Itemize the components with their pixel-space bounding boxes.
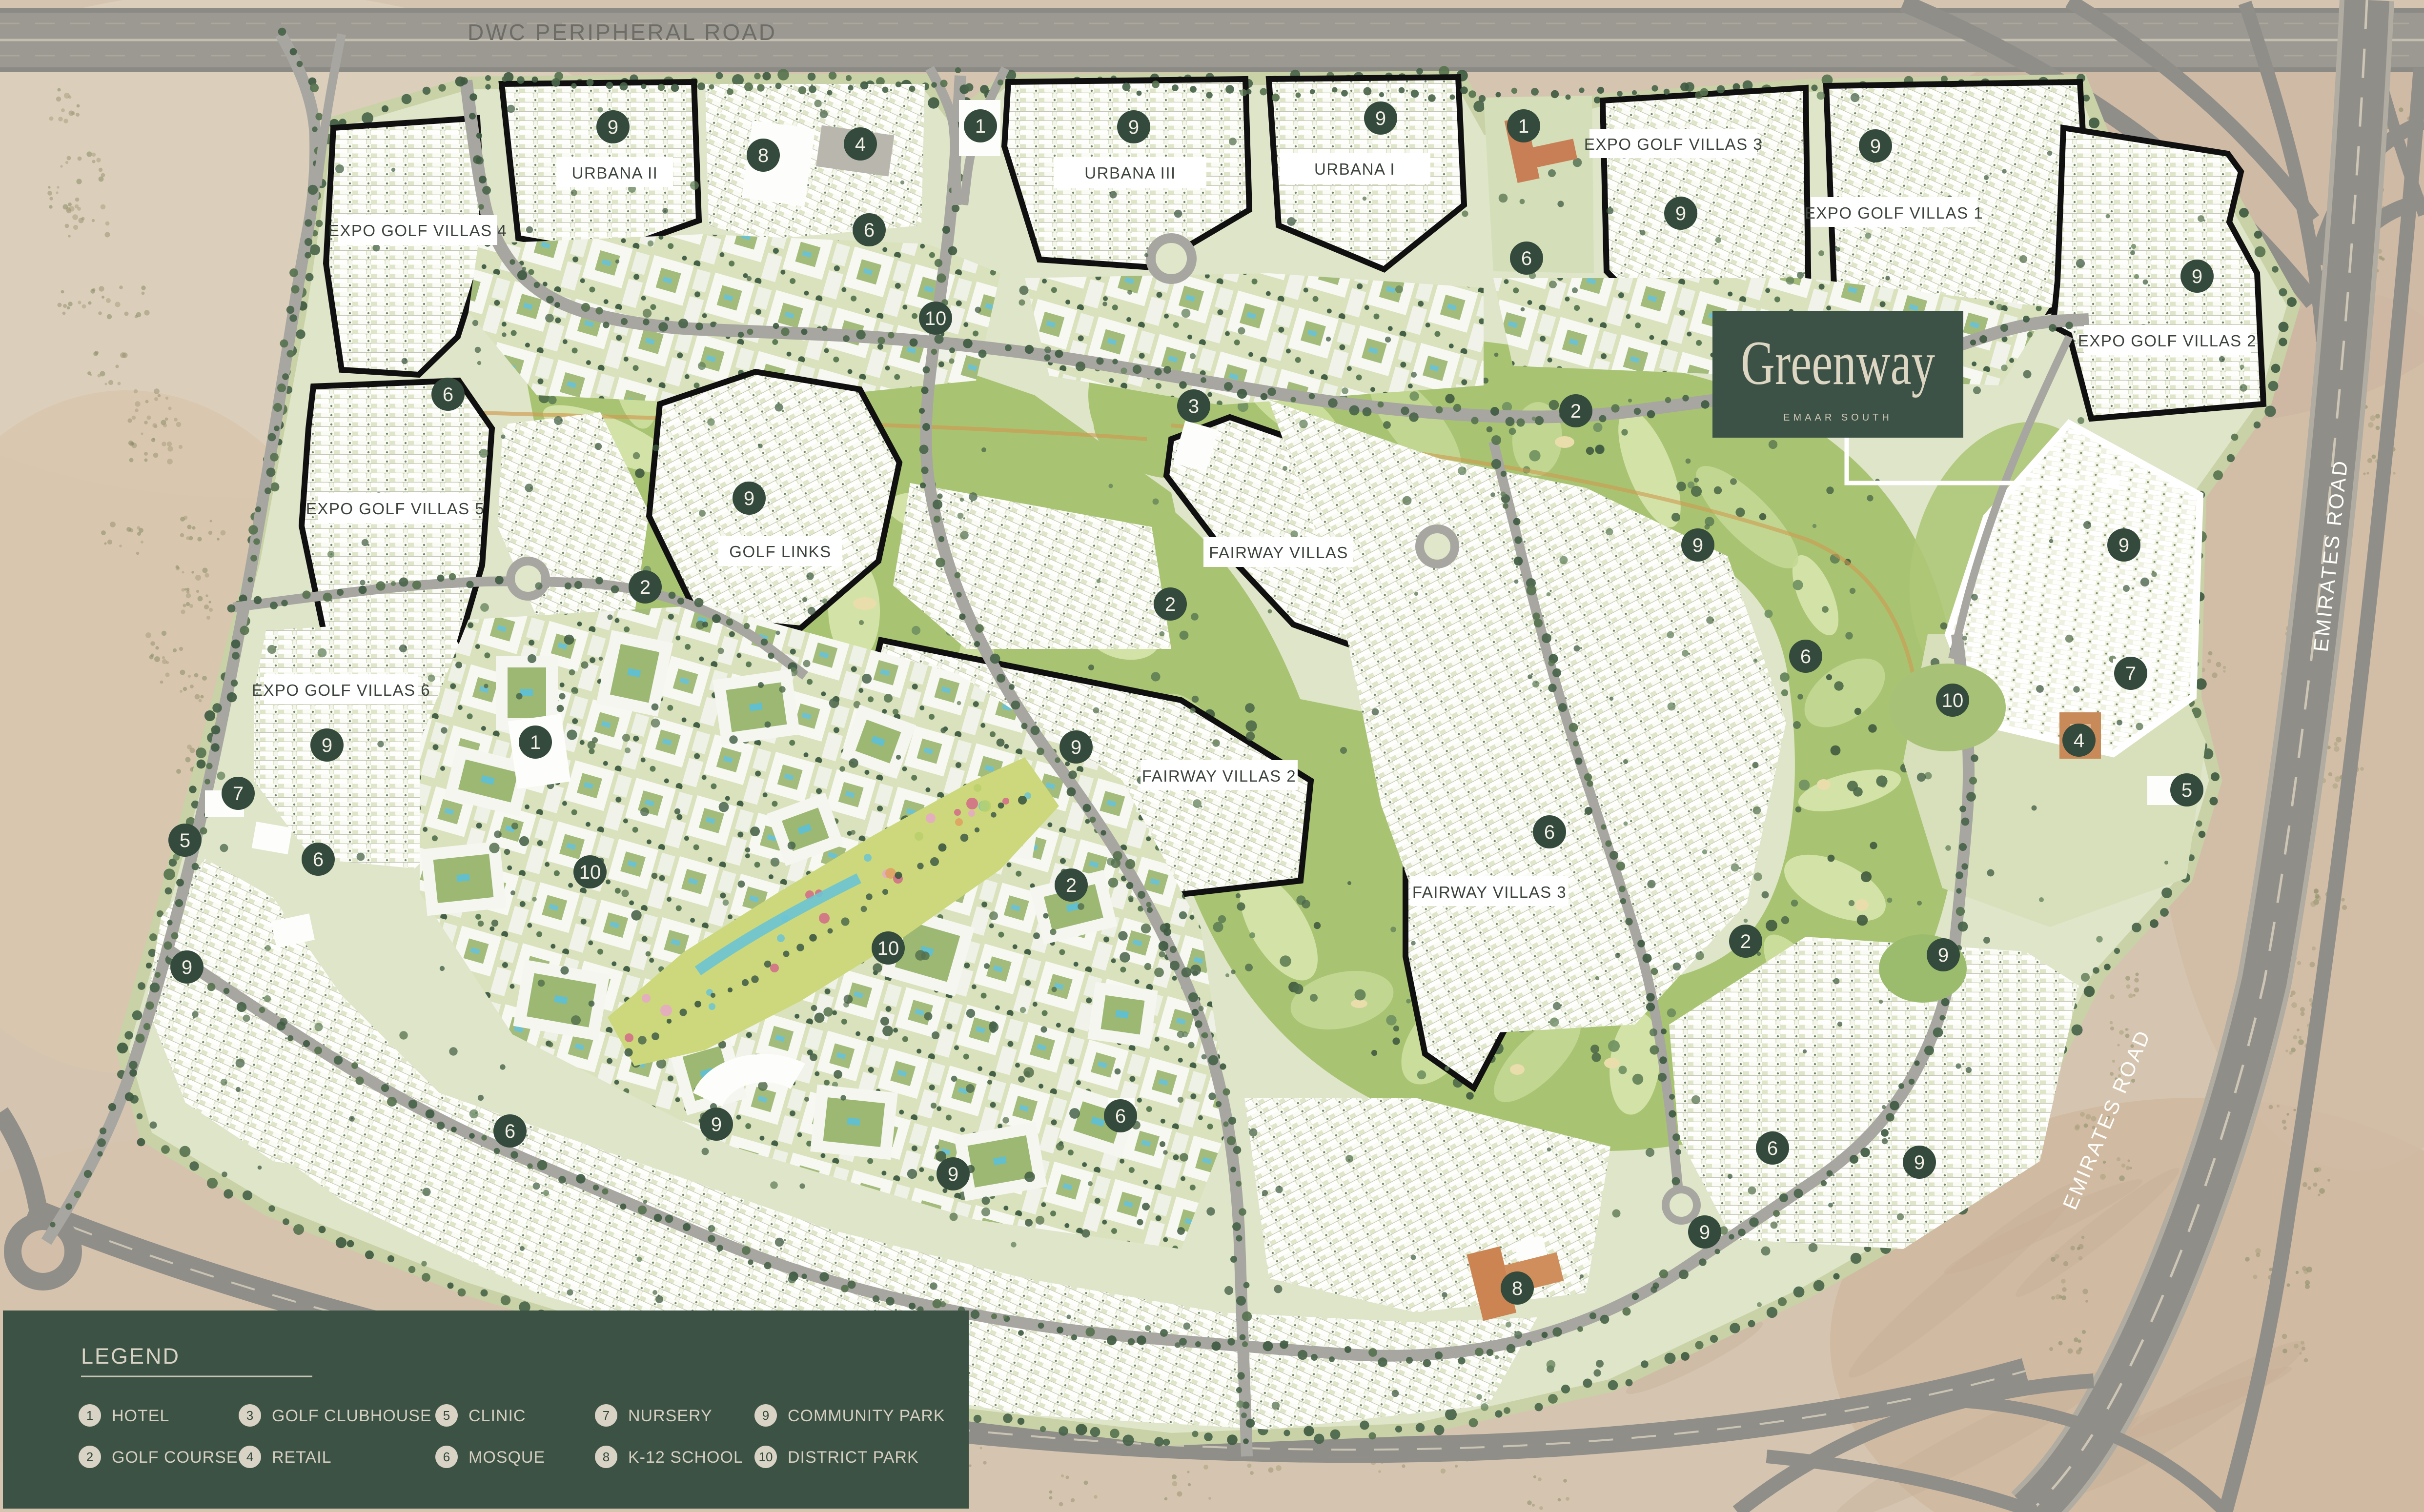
svg-text:2: 2 (1740, 931, 1751, 952)
svg-text:NURSERY: NURSERY (628, 1407, 713, 1425)
svg-text:6: 6 (313, 849, 324, 870)
svg-text:10: 10 (877, 938, 899, 959)
svg-text:6: 6 (443, 1450, 450, 1464)
svg-text:8: 8 (1512, 1278, 1523, 1299)
svg-text:URBANA III: URBANA III (1084, 164, 1176, 182)
svg-text:FAIRWAY VILLAS: FAIRWAY VILLAS (1209, 544, 1348, 562)
svg-text:EXPO GOLF VILLAS 1: EXPO GOLF VILLAS 1 (1805, 204, 1983, 222)
svg-text:EXPO GOLF VILLAS 5: EXPO GOLF VILLAS 5 (306, 500, 485, 518)
svg-text:8: 8 (603, 1450, 610, 1464)
svg-text:10: 10 (579, 862, 601, 883)
svg-text:9: 9 (1870, 136, 1881, 157)
svg-text:4: 4 (246, 1450, 253, 1464)
svg-text:10: 10 (1942, 690, 1964, 711)
svg-text:9: 9 (1914, 1152, 1925, 1173)
svg-text:GOLF LINKS: GOLF LINKS (729, 543, 831, 561)
svg-text:9: 9 (711, 1114, 722, 1135)
svg-text:Greenway: Greenway (1741, 328, 1935, 398)
svg-text:2: 2 (640, 577, 651, 598)
svg-text:5: 5 (180, 830, 190, 851)
svg-text:2: 2 (1570, 401, 1581, 422)
svg-text:6: 6 (1800, 646, 1811, 667)
svg-text:1: 1 (1518, 116, 1529, 137)
svg-text:1: 1 (86, 1408, 93, 1423)
svg-text:6: 6 (864, 220, 875, 241)
svg-text:2: 2 (86, 1450, 93, 1464)
svg-text:COMMUNITY PARK: COMMUNITY PARK (788, 1407, 945, 1425)
svg-text:6: 6 (1115, 1106, 1126, 1127)
svg-text:9: 9 (744, 488, 754, 509)
svg-text:7: 7 (233, 783, 244, 805)
svg-text:RETAIL: RETAIL (272, 1448, 332, 1467)
svg-text:3: 3 (1188, 396, 1199, 417)
svg-text:6: 6 (443, 384, 453, 405)
svg-text:LEGEND: LEGEND (81, 1344, 180, 1369)
svg-text:DISTRICT PARK: DISTRICT PARK (788, 1448, 919, 1467)
svg-text:4: 4 (855, 134, 866, 155)
svg-text:8: 8 (758, 145, 769, 166)
svg-text:HOTEL: HOTEL (112, 1407, 169, 1425)
svg-text:GOLF COURSE: GOLF COURSE (112, 1448, 238, 1467)
svg-text:5: 5 (443, 1408, 450, 1423)
svg-text:9: 9 (1375, 108, 1386, 129)
svg-text:9: 9 (1128, 117, 1139, 138)
svg-text:GOLF CLUBHOUSE: GOLF CLUBHOUSE (272, 1407, 432, 1425)
svg-text:1: 1 (530, 732, 541, 753)
svg-text:9: 9 (322, 735, 332, 756)
svg-text:9: 9 (1071, 737, 1081, 758)
svg-text:URBANA II: URBANA II (572, 164, 658, 182)
svg-text:9: 9 (2118, 535, 2129, 556)
svg-text:6: 6 (1767, 1138, 1778, 1159)
svg-text:10: 10 (759, 1450, 773, 1464)
svg-text:EXPO GOLF VILLAS 4: EXPO GOLF VILLAS 4 (328, 222, 507, 240)
svg-text:URBANA I: URBANA I (1314, 160, 1395, 178)
svg-text:9: 9 (1938, 945, 1949, 966)
svg-text:EXPO GOLF VILLAS 3: EXPO GOLF VILLAS 3 (1584, 135, 1763, 153)
svg-text:K-12 SCHOOL: K-12 SCHOOL (628, 1448, 743, 1467)
svg-text:2: 2 (1165, 594, 1176, 615)
svg-text:9: 9 (182, 957, 192, 978)
svg-text:1: 1 (975, 116, 986, 137)
svg-text:9: 9 (1675, 203, 1686, 224)
svg-text:MOSQUE: MOSQUE (469, 1448, 545, 1467)
svg-text:EXPO GOLF VILLAS 6: EXPO GOLF VILLAS 6 (252, 681, 430, 699)
svg-text:9: 9 (1699, 1222, 1710, 1243)
svg-text:9: 9 (948, 1164, 958, 1185)
svg-text:7: 7 (603, 1408, 610, 1423)
svg-text:EXPO GOLF VILLAS 2: EXPO GOLF VILLAS 2 (2078, 332, 2257, 350)
svg-text:3: 3 (246, 1408, 253, 1423)
svg-text:6: 6 (1521, 248, 1532, 269)
svg-text:6: 6 (505, 1121, 515, 1142)
svg-text:9: 9 (1692, 535, 1703, 556)
svg-text:CLINIC: CLINIC (469, 1407, 526, 1425)
svg-text:9: 9 (608, 117, 618, 138)
svg-text:FAIRWAY VILLAS 3: FAIRWAY VILLAS 3 (1412, 883, 1567, 901)
svg-text:4: 4 (2074, 730, 2084, 751)
svg-text:EMAAR SOUTH: EMAAR SOUTH (1783, 412, 1893, 423)
svg-text:9: 9 (762, 1408, 769, 1423)
svg-text:6: 6 (1544, 822, 1555, 843)
svg-text:FAIRWAY VILLAS 2: FAIRWAY VILLAS 2 (1142, 767, 1296, 785)
svg-text:9: 9 (2192, 266, 2202, 287)
svg-text:5: 5 (2181, 780, 2192, 801)
svg-text:7: 7 (2125, 663, 2136, 685)
svg-text:DWC PERIPHERAL ROAD: DWC PERIPHERAL ROAD (468, 20, 777, 45)
svg-text:2: 2 (1066, 875, 1077, 896)
svg-text:10: 10 (925, 308, 947, 329)
